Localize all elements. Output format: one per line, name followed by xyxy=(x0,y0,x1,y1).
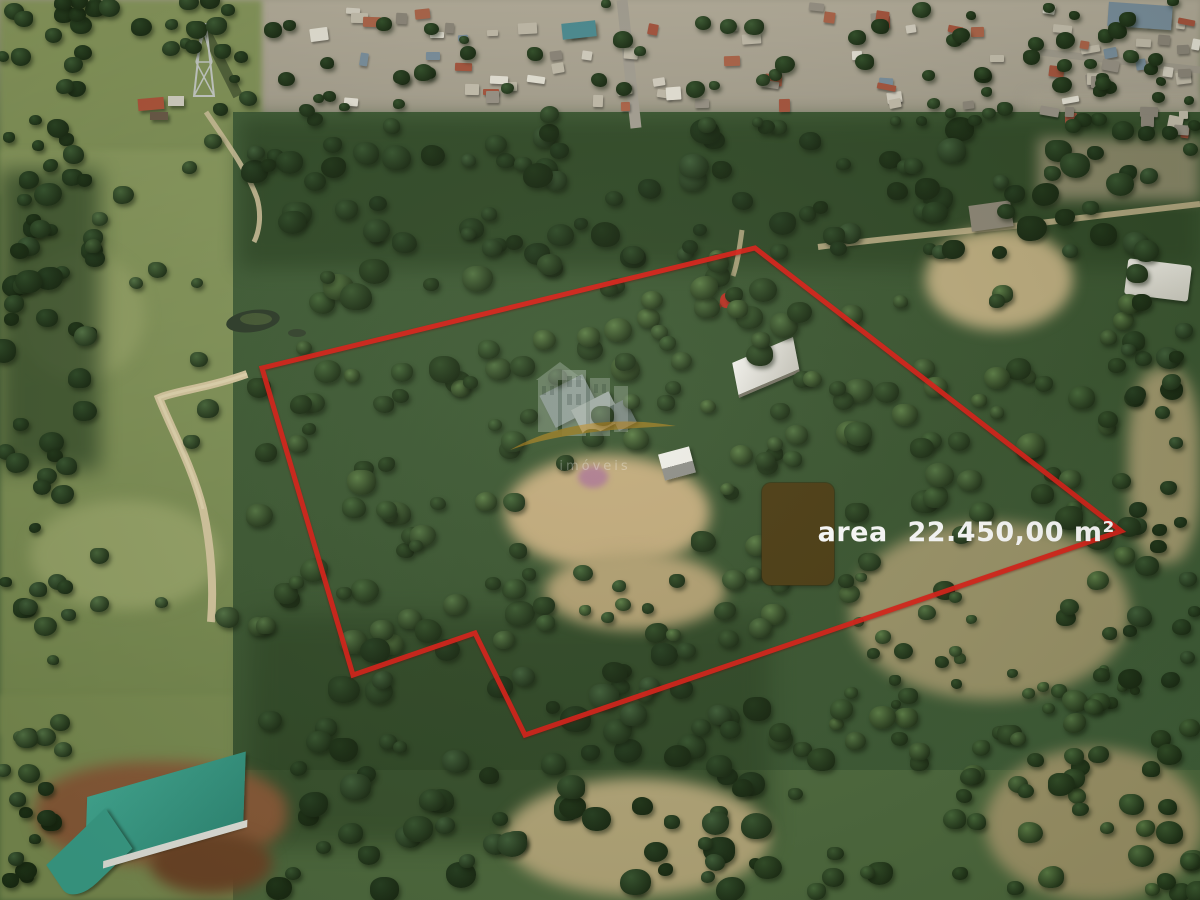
photo-vignette xyxy=(0,0,1200,900)
aerial-photo: imóveis area 22.450,00 m² xyxy=(0,0,1200,900)
